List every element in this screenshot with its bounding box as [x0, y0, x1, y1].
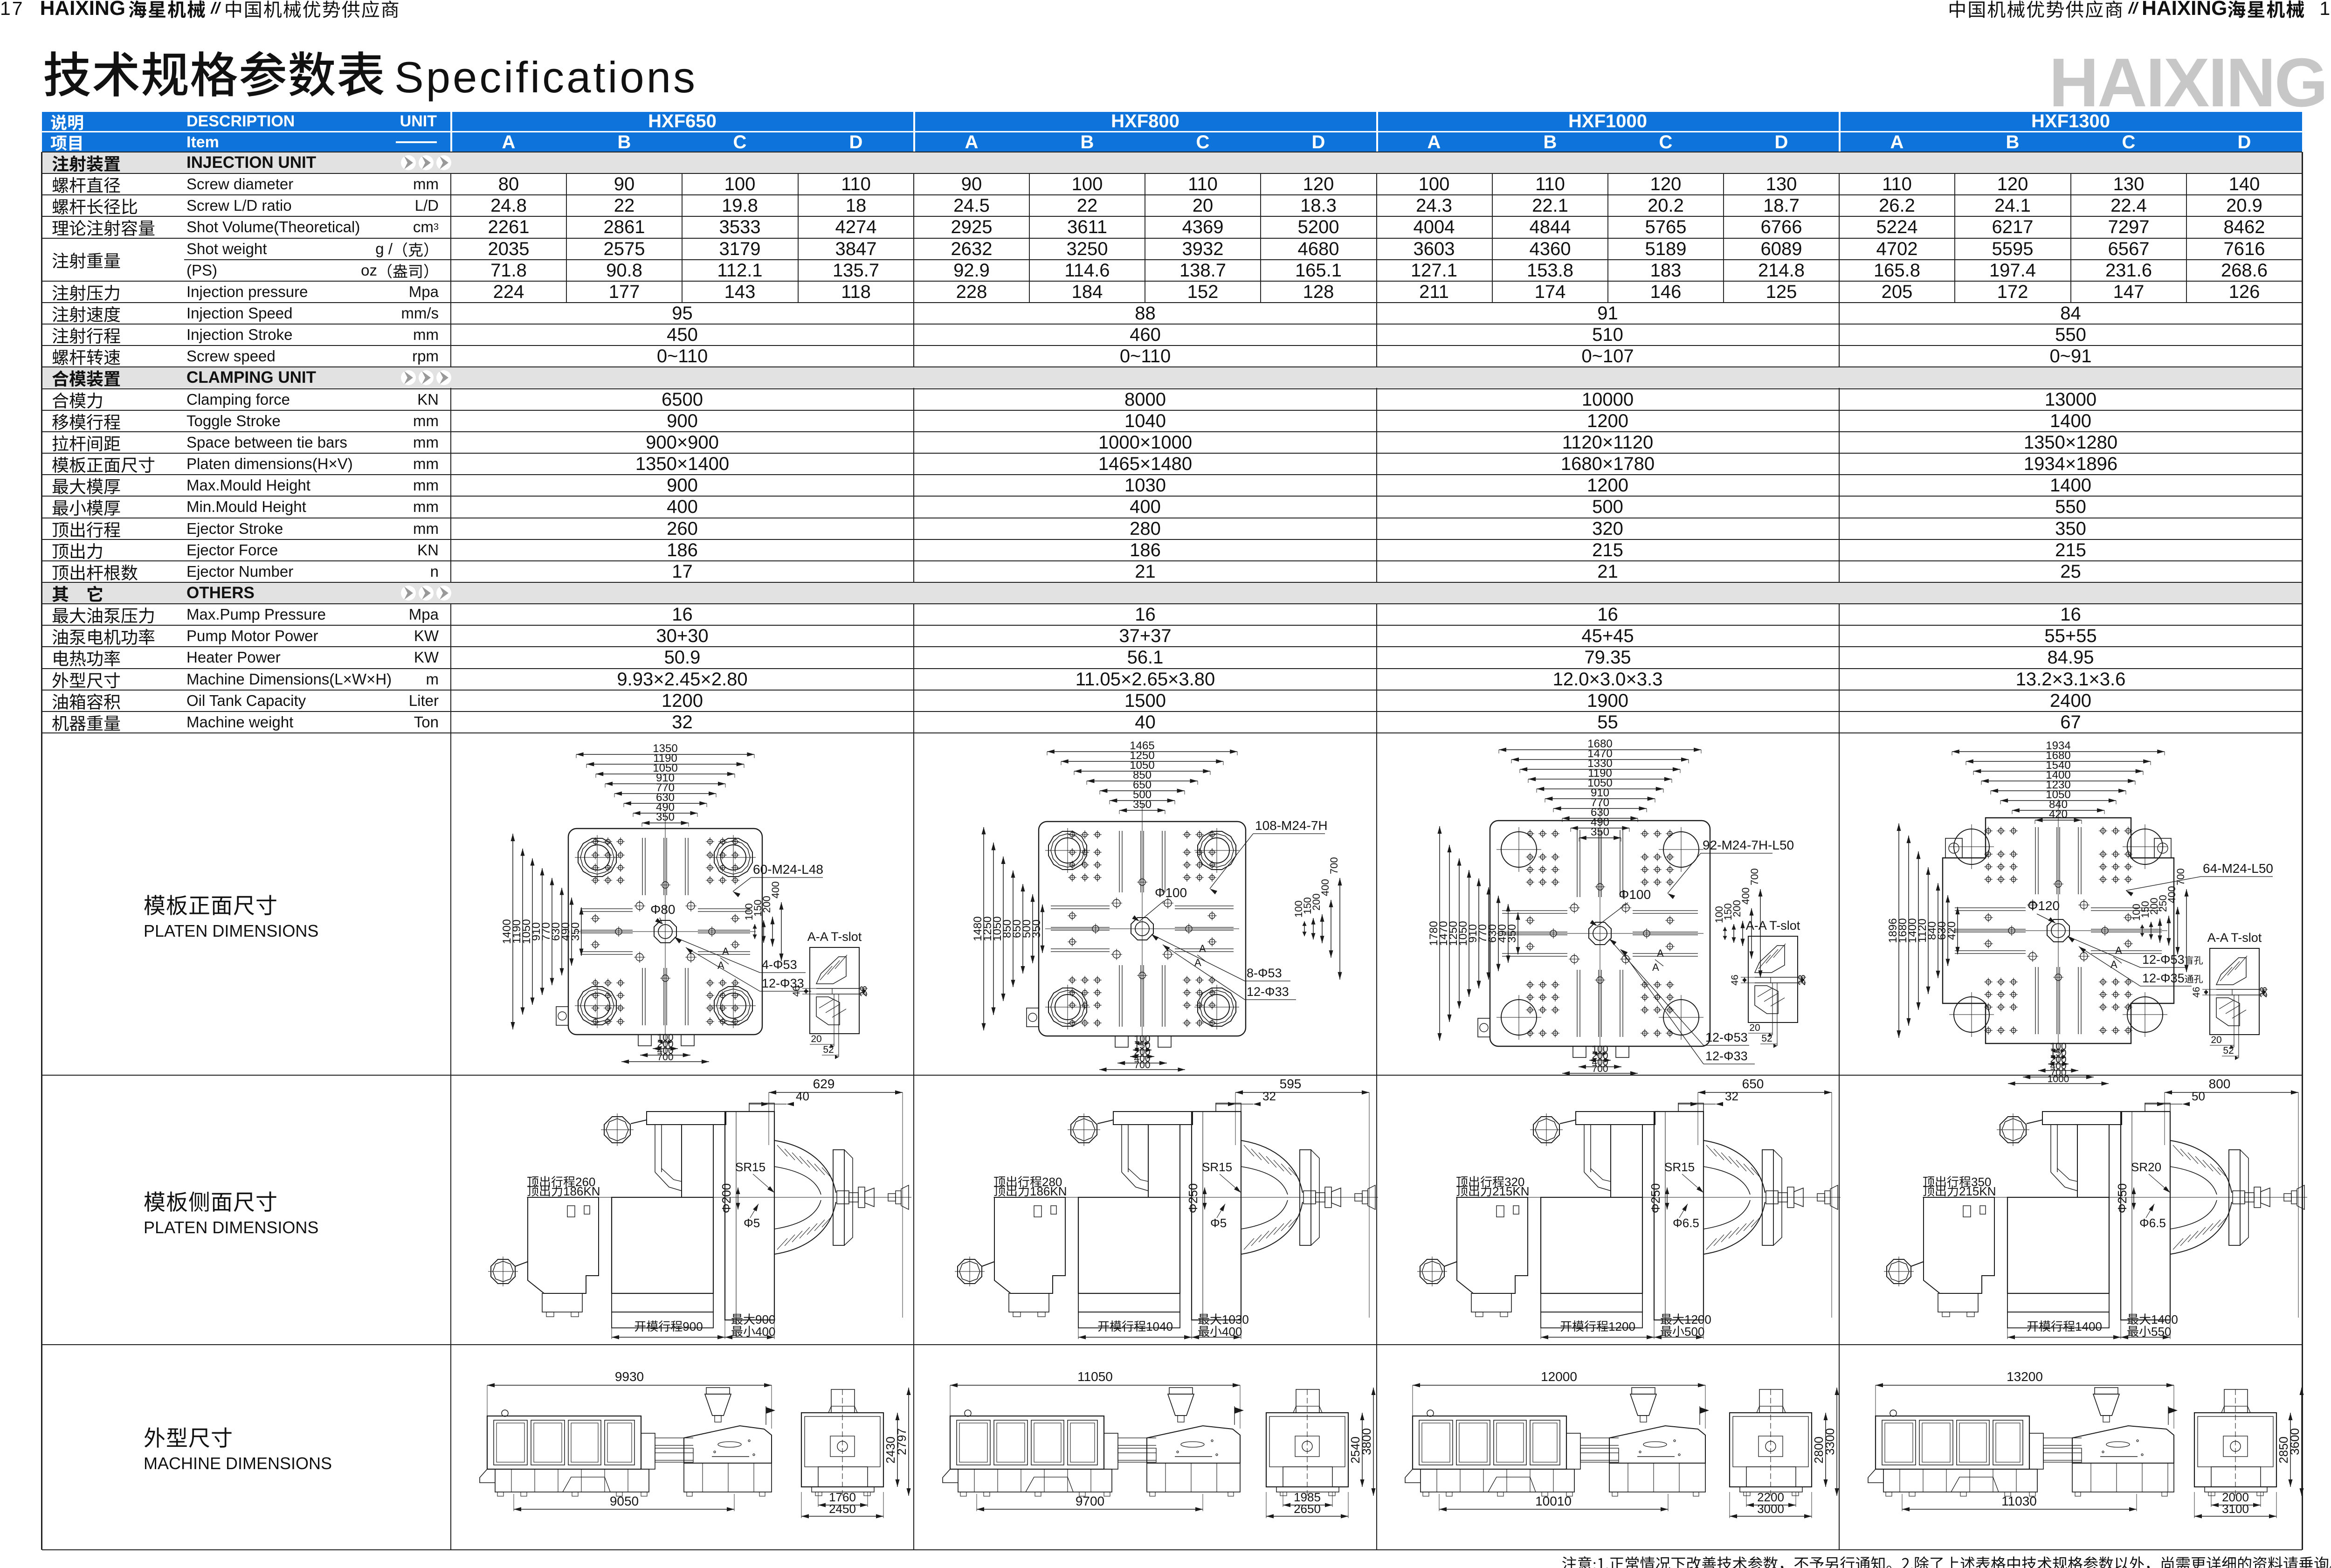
svg-text:32: 32 [1725, 1089, 1738, 1103]
svg-text:700: 700 [1592, 1064, 1608, 1074]
svg-text:11050: 11050 [1077, 1369, 1113, 1384]
svg-text:4-Φ53: 4-Φ53 [762, 958, 797, 972]
svg-text:350: 350 [1133, 798, 1152, 811]
svg-text:8-Φ53: 8-Φ53 [1247, 966, 1282, 980]
svg-text:2797: 2797 [895, 1428, 909, 1455]
svg-text:SR15: SR15 [1664, 1160, 1695, 1174]
svg-text:Φ5: Φ5 [744, 1216, 760, 1230]
svg-text:Φ100: Φ100 [1619, 887, 1651, 902]
svg-text:46: 46 [2191, 987, 2202, 997]
svg-text:28: 28 [1797, 974, 1807, 985]
svg-text:700: 700 [2175, 868, 2186, 885]
svg-text:9050: 9050 [610, 1494, 639, 1508]
svg-text:700: 700 [1134, 1060, 1150, 1071]
svg-text:400: 400 [2166, 886, 2178, 903]
svg-text:A-A T-slot: A-A T-slot [2207, 931, 2262, 945]
svg-text:400: 400 [1319, 879, 1331, 896]
svg-text:629: 629 [813, 1077, 835, 1091]
svg-text:Φ80: Φ80 [650, 902, 675, 917]
svg-text:2650: 2650 [1294, 1502, 1321, 1516]
svg-text:Φ250: Φ250 [1648, 1183, 1662, 1213]
svg-text:350: 350 [1591, 826, 1609, 838]
svg-text:9930: 9930 [615, 1369, 644, 1384]
svg-text:A: A [1199, 943, 1206, 954]
svg-text:700: 700 [1328, 857, 1340, 874]
svg-text:Φ6.5: Φ6.5 [1673, 1216, 1699, 1230]
svg-text:46: 46 [1730, 974, 1740, 985]
svg-text:400: 400 [1740, 887, 1752, 905]
svg-text:A: A [722, 946, 729, 957]
svg-text:开模行程1040: 开模行程1040 [1097, 1319, 1173, 1333]
svg-text:Φ100: Φ100 [1155, 885, 1187, 900]
svg-text:40: 40 [796, 1089, 809, 1103]
svg-text:12-Φ33: 12-Φ33 [1705, 1049, 1748, 1063]
svg-text:顶出力186KN: 顶出力186KN [527, 1184, 600, 1198]
svg-text:Φ5: Φ5 [1210, 1216, 1227, 1230]
svg-text:A: A [717, 960, 724, 971]
svg-text:3600: 3600 [2288, 1428, 2302, 1455]
svg-text:SR20: SR20 [2131, 1160, 2161, 1174]
svg-text:12-Φ53: 12-Φ53 [1705, 1030, 1748, 1044]
svg-text:12-Φ53盲孔: 12-Φ53盲孔 [2142, 953, 2203, 967]
svg-text:12000: 12000 [1541, 1369, 1577, 1384]
svg-text:350: 350 [1506, 924, 1518, 943]
svg-text:20: 20 [1749, 1022, 1760, 1033]
svg-text:Φ250: Φ250 [1186, 1183, 1200, 1213]
svg-text:SR15: SR15 [735, 1160, 766, 1174]
svg-text:92-M24-7H-L50: 92-M24-7H-L50 [1703, 838, 1794, 852]
svg-text:3800: 3800 [1359, 1428, 1373, 1455]
svg-text:700: 700 [1749, 868, 1760, 885]
svg-text:12-Φ35通孔: 12-Φ35通孔 [2142, 971, 2203, 985]
svg-text:开模行程900: 开模行程900 [634, 1319, 703, 1333]
svg-text:SR15: SR15 [1202, 1160, 1232, 1174]
svg-text:20: 20 [811, 1034, 821, 1044]
svg-text:A: A [1657, 947, 1664, 959]
svg-text:420: 420 [2049, 808, 2068, 821]
svg-text:28: 28 [858, 986, 869, 996]
svg-text:12-Φ33: 12-Φ33 [1247, 985, 1289, 999]
svg-text:650: 650 [1742, 1077, 1764, 1091]
svg-text:A: A [2115, 945, 2122, 956]
svg-text:Φ200: Φ200 [719, 1183, 733, 1213]
svg-text:20: 20 [2211, 1035, 2221, 1045]
svg-text:A-A T-slot: A-A T-slot [1746, 919, 1800, 933]
svg-text:64-M24-L50: 64-M24-L50 [2203, 861, 2273, 876]
svg-text:108-M24-7H: 108-M24-7H [1255, 818, 1328, 833]
svg-text:9700: 9700 [1076, 1494, 1104, 1508]
svg-text:350: 350 [656, 811, 675, 823]
svg-text:700: 700 [657, 1052, 673, 1063]
svg-text:开模行程1200: 开模行程1200 [1560, 1319, 1635, 1333]
svg-text:400: 400 [770, 881, 781, 898]
svg-text:32: 32 [1262, 1089, 1276, 1103]
svg-text:10010: 10010 [1535, 1494, 1572, 1508]
svg-text:A: A [2110, 959, 2117, 970]
svg-text:350: 350 [1030, 919, 1043, 938]
svg-text:28: 28 [2258, 987, 2269, 997]
svg-text:46: 46 [791, 986, 802, 996]
svg-text:Φ250: Φ250 [2115, 1183, 2129, 1213]
svg-text:顶出力215KN: 顶出力215KN [1923, 1184, 1996, 1198]
svg-text:50: 50 [2192, 1089, 2205, 1103]
svg-text:顶出力186KN: 顶出力186KN [993, 1184, 1067, 1198]
svg-text:3300: 3300 [1823, 1428, 1837, 1455]
svg-text:A-A T-slot: A-A T-slot [807, 930, 862, 944]
svg-text:350: 350 [569, 922, 582, 941]
svg-text:A: A [1652, 961, 1659, 973]
svg-text:A: A [1194, 957, 1201, 968]
svg-text:60-M24-L48: 60-M24-L48 [753, 862, 823, 877]
svg-text:顶出力215KN: 顶出力215KN [1456, 1184, 1530, 1198]
svg-text:Φ6.5: Φ6.5 [2139, 1216, 2166, 1230]
svg-text:595: 595 [1280, 1077, 1302, 1091]
svg-text:800: 800 [2209, 1077, 2231, 1091]
svg-text:420: 420 [1945, 921, 1958, 940]
svg-text:开模行程1400: 开模行程1400 [2027, 1319, 2102, 1333]
svg-text:11030: 11030 [2001, 1494, 2037, 1508]
svg-text:2450: 2450 [829, 1502, 856, 1516]
svg-text:13200: 13200 [2007, 1369, 2043, 1384]
svg-text:Φ120: Φ120 [2028, 898, 2060, 913]
svg-text:3100: 3100 [2222, 1502, 2249, 1516]
svg-text:3000: 3000 [1757, 1502, 1784, 1516]
